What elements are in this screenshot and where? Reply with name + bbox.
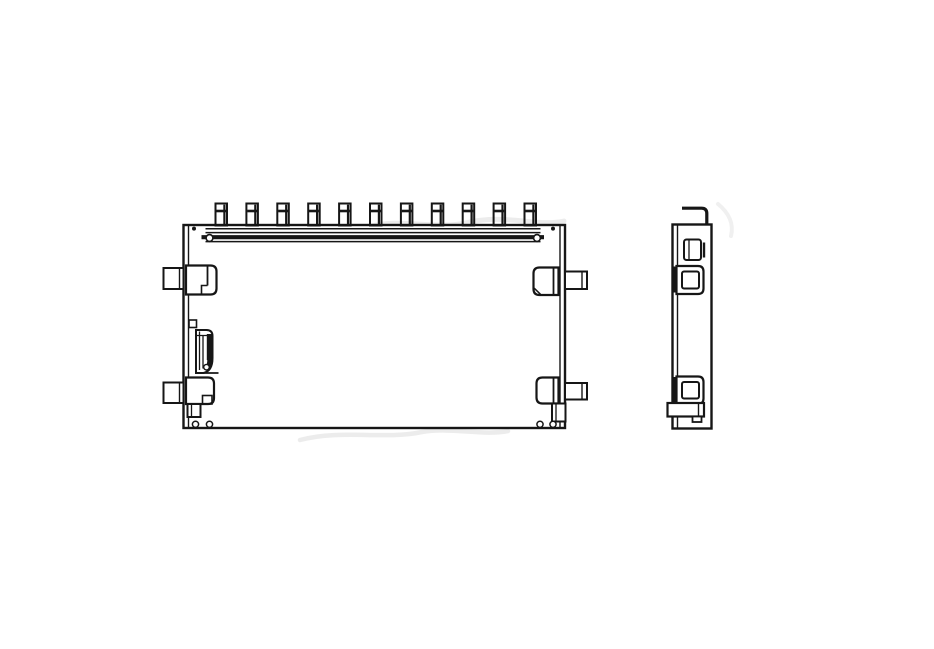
right-bottom-foot [552, 404, 566, 422]
left-solder-pad-1 [192, 421, 198, 427]
rail-end-left [206, 235, 213, 242]
watermark-smudge-3 [718, 204, 732, 236]
right-bottom-lug [565, 383, 587, 400]
corner-rivet-right [551, 227, 555, 231]
right-solder-pad-1 [537, 421, 543, 427]
left-solder-pad-2 [206, 421, 212, 427]
latch-hook-eye [204, 364, 210, 370]
watermark-smudge-2 [300, 430, 508, 440]
side-bottom-foot [693, 417, 702, 423]
right-bottom-bracket [537, 378, 559, 404]
right-solder-pad-2 [550, 421, 556, 427]
front-view [164, 204, 588, 429]
rail-end-right [534, 235, 541, 242]
left-bottom-bracket [186, 378, 214, 405]
drawing-canvas [0, 0, 934, 649]
body-outline [184, 225, 566, 428]
side-hook-pin [682, 208, 707, 225]
right-top-lug [565, 272, 587, 290]
technical-drawing-svg [0, 0, 934, 649]
left-bottom-foot [188, 404, 201, 417]
side-view [668, 208, 712, 428]
corner-rivet-left [192, 227, 196, 231]
left-bottom-lug [164, 383, 184, 404]
left-top-lug [164, 268, 184, 289]
